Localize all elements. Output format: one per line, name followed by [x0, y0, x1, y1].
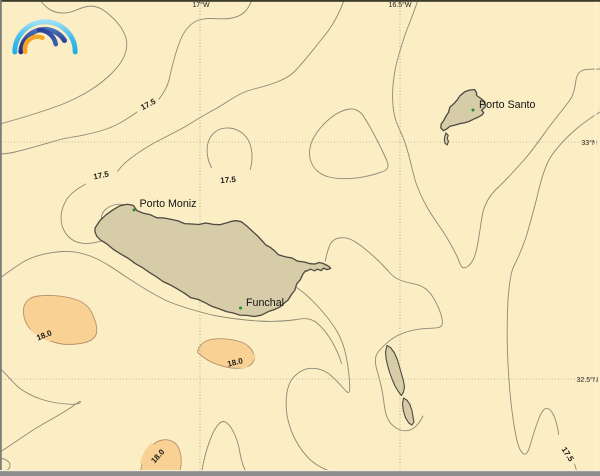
svg-text:17.5: 17.5 [220, 175, 237, 185]
svg-text:Funchal: Funchal [246, 297, 284, 309]
svg-text:Porto Moniz: Porto Moniz [140, 198, 197, 210]
svg-text:33°N: 33°N [581, 139, 597, 147]
svg-text:16.5°W: 16.5°W [388, 1, 411, 9]
svg-text:32.5°N: 32.5°N [577, 376, 598, 384]
svg-text:17°W: 17°W [192, 1, 210, 9]
svg-text:Porto Santo: Porto Santo [479, 99, 535, 111]
